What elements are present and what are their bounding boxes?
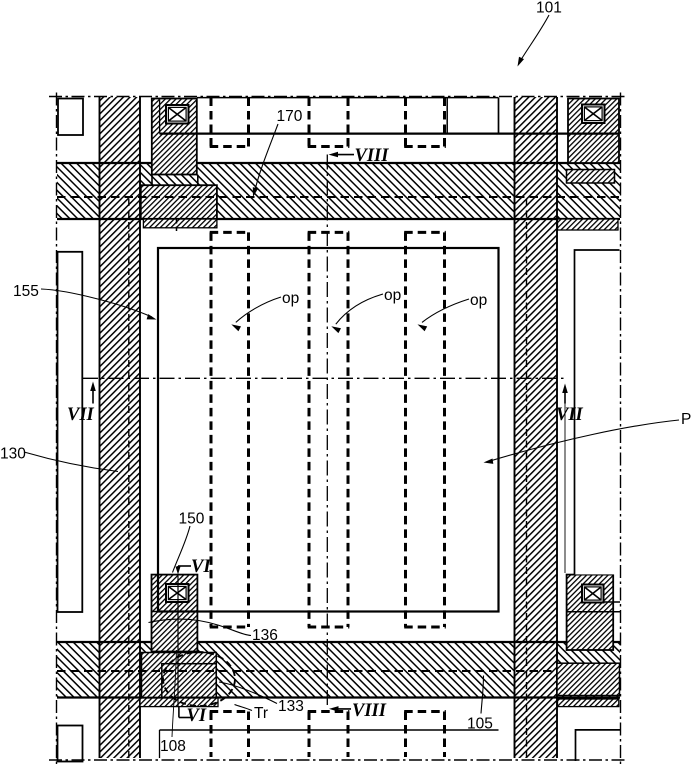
svg-text:170: 170 xyxy=(277,108,303,125)
svg-text:VI: VI xyxy=(187,706,207,726)
svg-text:136: 136 xyxy=(252,627,278,644)
svg-text:150: 150 xyxy=(179,511,205,528)
svg-text:VII: VII xyxy=(67,405,95,425)
svg-text:105: 105 xyxy=(467,716,493,733)
svg-text:155: 155 xyxy=(13,283,39,300)
svg-text:130: 130 xyxy=(0,446,26,463)
svg-text:VIII: VIII xyxy=(352,701,387,721)
svg-text:133: 133 xyxy=(278,698,304,715)
svg-text:108: 108 xyxy=(160,738,186,755)
svg-text:Tr: Tr xyxy=(254,705,268,722)
svg-text:P: P xyxy=(681,411,691,428)
svg-text:op: op xyxy=(384,287,401,304)
svg-text:op: op xyxy=(470,292,487,309)
svg-text:op: op xyxy=(282,290,299,307)
svg-text:VI: VI xyxy=(191,557,211,577)
svg-text:101: 101 xyxy=(536,0,562,17)
svg-text:VII: VII xyxy=(556,405,584,425)
svg-text:VIII: VIII xyxy=(355,146,390,166)
